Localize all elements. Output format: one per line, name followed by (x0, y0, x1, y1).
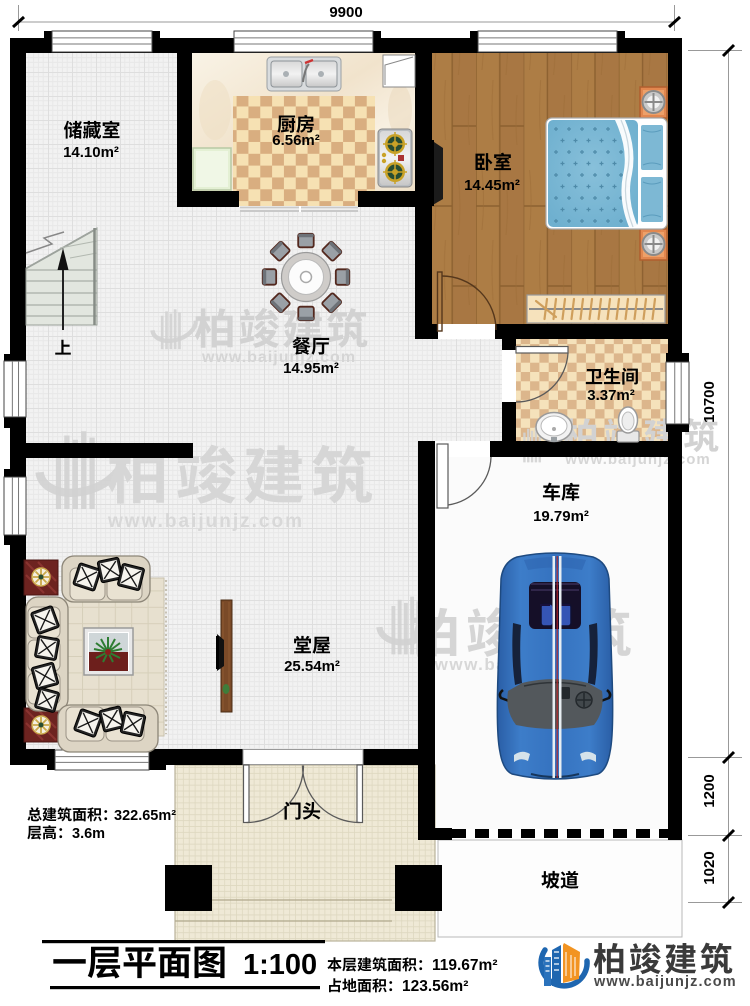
svg-text:14.10m²: 14.10m² (63, 144, 119, 161)
svg-text:3.37m²: 3.37m² (587, 387, 635, 404)
svg-text:14.45m²: 14.45m² (464, 177, 520, 194)
svg-text:119.67m²: 119.67m² (432, 957, 498, 974)
svg-text:1:100: 1:100 (243, 949, 317, 981)
svg-text:1020: 1020 (701, 851, 718, 884)
svg-text:19.79m²: 19.79m² (533, 508, 589, 525)
svg-text:6.56m²: 6.56m² (272, 132, 320, 149)
svg-text:9900: 9900 (329, 4, 362, 21)
svg-text:14.95m²: 14.95m² (283, 360, 339, 377)
svg-text:www.baijunjz.com: www.baijunjz.com (107, 511, 304, 532)
svg-text:3.6m: 3.6m (72, 826, 105, 842)
svg-text:25.54m²: 25.54m² (284, 658, 340, 675)
svg-text:1200: 1200 (701, 774, 718, 807)
svg-text:322.65m²: 322.65m² (114, 808, 176, 824)
svg-text:10700: 10700 (701, 381, 718, 423)
svg-text:www.baijunjz.com: www.baijunjz.com (593, 974, 737, 990)
svg-text:123.56m²: 123.56m² (402, 978, 468, 995)
